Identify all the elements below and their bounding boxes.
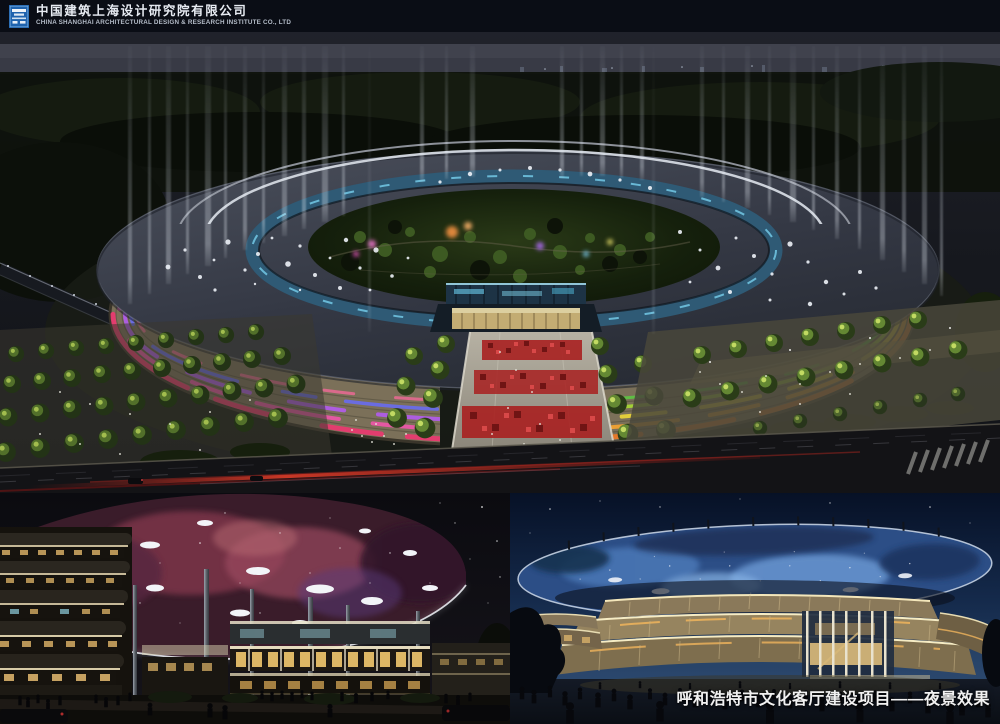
red-plaza-walkway	[452, 332, 614, 450]
center-glass-building	[230, 621, 430, 696]
company-name-zh: 中国建筑上海设计研究院有限公司	[36, 5, 291, 19]
aerial-night-view-image	[0, 32, 1000, 493]
right-building-fragment	[432, 643, 510, 695]
car-silhouette	[442, 705, 510, 721]
low-glass-wing	[142, 645, 228, 697]
foreground-ground	[0, 690, 510, 724]
aerial-render	[0, 32, 1000, 493]
car-silhouette	[0, 709, 68, 723]
glass-atrium	[802, 611, 894, 677]
red-paving-pattern	[462, 340, 602, 438]
header-bar: 中国建筑上海设计研究院有限公司 CHINA SHANGHAI ARCHITECT…	[0, 0, 1000, 32]
facade-bands	[0, 533, 132, 697]
street-render	[0, 493, 510, 724]
company-name-en: CHINA SHANGHAI ARCHITECTURAL DESIGN & RE…	[36, 20, 291, 27]
left-curved-building	[0, 527, 132, 699]
car	[128, 478, 143, 484]
presentation-board: 中国建筑上海设计研究院有限公司 CHINA SHANGHAI ARCHITECT…	[0, 0, 1000, 724]
company-name-block: 中国建筑上海设计研究院有限公司 CHINA SHANGHAI ARCHITECT…	[36, 5, 291, 27]
canopy-view-image: 呼和浩特市文化客厅建设项目——夜景效果	[510, 493, 1000, 724]
street-view-image	[0, 493, 510, 724]
project-title-caption: 呼和浩特市文化客厅建设项目——夜景效果	[676, 685, 990, 709]
entrance-glass-bridge	[430, 283, 602, 332]
company-logo-icon	[9, 5, 29, 28]
